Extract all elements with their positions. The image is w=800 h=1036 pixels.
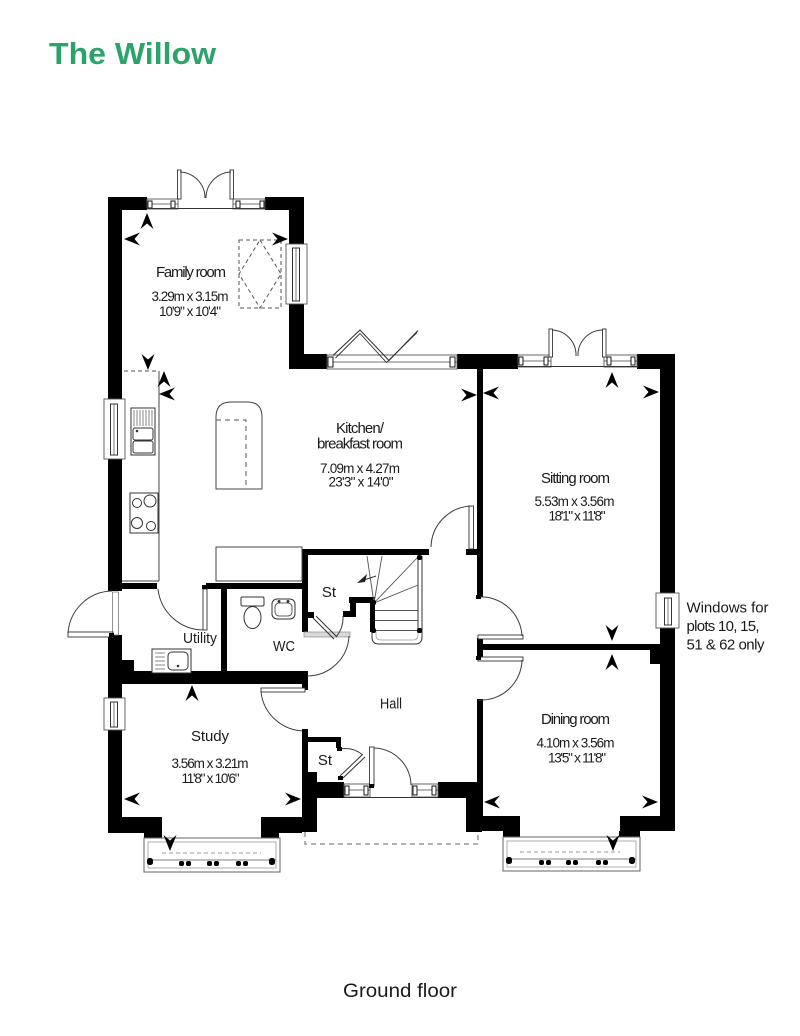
svg-text:Dining room: Dining room [541,711,610,728]
svg-text:St: St [318,752,333,769]
svg-text:Kitchen/: Kitchen/ [336,420,385,437]
svg-text:11'8" x 10'6": 11'8" x 10'6" [182,771,240,786]
svg-text:3.29m x 3.15m: 3.29m x 3.15m [152,289,229,304]
svg-text:18'1" x 11'8": 18'1" x 11'8" [549,509,606,524]
svg-text:4.10m x 3.56m: 4.10m x 3.56m [537,736,615,751]
svg-text:Family room: Family room [156,264,226,281]
svg-text:13'5" x 11'8": 13'5" x 11'8" [548,751,606,766]
svg-text:St: St [322,584,337,601]
svg-text:Ground floor: Ground floor [343,981,458,1002]
svg-text:Study: Study [191,728,230,745]
svg-text:23'3" x 14'0": 23'3" x 14'0" [329,475,394,490]
svg-text:WC: WC [273,638,295,655]
svg-text:Hall: Hall [380,696,402,713]
svg-text:10'9" x 10'4": 10'9" x 10'4" [159,304,221,319]
svg-text:The Willow: The Willow [49,36,217,71]
svg-text:Utility: Utility [183,630,217,647]
svg-text:breakfast room: breakfast room [317,436,403,453]
svg-text:plots 10, 15,: plots 10, 15, [687,618,760,635]
svg-text:51 & 62 only: 51 & 62 only [687,637,766,654]
svg-text:Windows for: Windows for [687,600,769,617]
svg-text:5.53m x 3.56m: 5.53m x 3.56m [535,494,615,509]
svg-text:3.56m x 3.21m: 3.56m x 3.21m [172,756,249,771]
svg-text:Sitting room: Sitting room [541,470,610,487]
